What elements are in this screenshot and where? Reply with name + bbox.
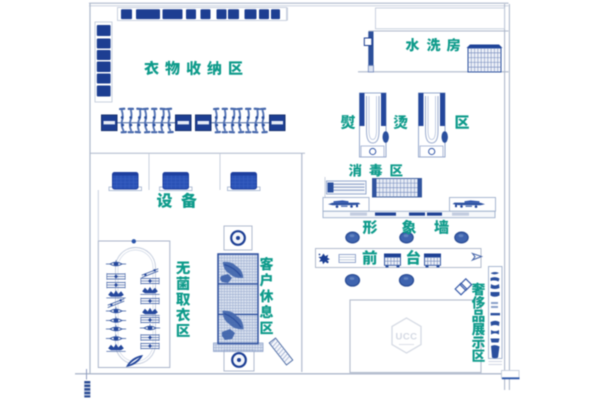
svg-text:UCC: UCC [395, 332, 417, 343]
